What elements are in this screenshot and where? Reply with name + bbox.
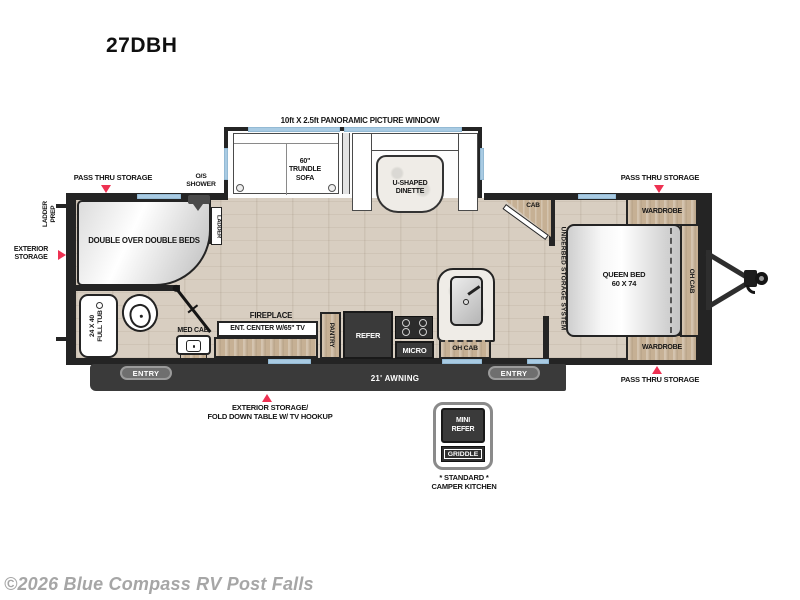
exterior-note-marker <box>262 394 272 402</box>
pass-thru-left-marker <box>101 185 111 193</box>
entry-badge-left: ENTRY <box>120 366 172 380</box>
burner-icon <box>402 328 410 336</box>
hitch-jack-hook <box>746 285 755 294</box>
queen-bed-label: QUEEN BED 60 X 74 <box>576 271 672 289</box>
wardrobe-bottom-label: WARDROBE <box>642 344 682 352</box>
corner-cab-label: CAB <box>518 202 548 210</box>
refrigerator: REFER <box>343 311 393 359</box>
entry-badge-right: ENTRY <box>488 366 540 380</box>
mini-refer: MINI REFER <box>441 408 485 443</box>
pass-thru-bottom-right-label: PASS THRU STORAGE <box>595 376 725 385</box>
hitch-ball-center <box>759 276 764 281</box>
wall-stub-ext-storage <box>56 337 66 341</box>
burner-icon <box>419 328 427 336</box>
kitchen-oh-cab-label: OH CAB <box>452 345 478 353</box>
exterior-storage-marker <box>58 250 66 260</box>
cooktop <box>395 316 433 339</box>
slideout-divider <box>342 133 350 194</box>
floorplan-canvas: 27DBH 60" TRUNDLE SOFA U-SHAPED DINETTE … <box>0 0 800 600</box>
faucet-icon <box>463 299 469 305</box>
awning-label: 21' AWNING <box>300 374 490 383</box>
ent-center-cabinet <box>214 337 318 358</box>
tub-label: 24 X 40 FULL TUB <box>89 298 107 354</box>
kitchen-oh-cab: OH CAB <box>439 340 491 359</box>
sofa-armrest-left <box>236 184 244 192</box>
os-shower-label: O/S SHOWER <box>178 173 224 189</box>
slideout-side-window-left <box>224 148 228 180</box>
sofa-label: 60" TRUNDLE SOFA <box>266 158 344 183</box>
wall-left-rear <box>66 193 76 365</box>
bunk-label: DOUBLE OVER DOUBLE BEDS <box>80 236 208 245</box>
burner-icon <box>419 319 427 327</box>
slideout-side-window-right <box>480 148 484 180</box>
bedroom-oh-cab-label: OH CAB <box>685 261 695 301</box>
pass-thru-top-right-label: PASS THRU STORAGE <box>595 174 725 183</box>
window-bedroom-top <box>578 194 616 199</box>
med-cab-label: MED CAB <box>168 327 218 335</box>
camper-kitchen-note: * STANDARD * CAMPER KITCHEN <box>400 474 528 492</box>
dealer-watermark: ©2026 Blue Compass RV Post Falls <box>4 574 314 595</box>
outside-shower-nozzle-icon <box>193 204 203 211</box>
panoramic-window-right <box>344 127 462 132</box>
hitch-crossmember <box>706 250 711 310</box>
dinette-bench-left <box>352 133 372 211</box>
griddle: GRIDDLE <box>441 446 485 462</box>
pass-thru-left-label: PASS THRU STORAGE <box>48 174 178 183</box>
hitch-ball <box>755 272 768 285</box>
exterior-note-label: EXTERIOR STORAGE/ FOLD DOWN TABLE W/ TV … <box>160 404 380 422</box>
wardrobe-bottom: WARDROBE <box>626 334 698 362</box>
fireplace-label: FIREPLACE <box>231 311 311 320</box>
pass-thru-bottom-right-marker <box>652 366 662 374</box>
pass-thru-top-right-marker <box>654 185 664 193</box>
outside-shower-icon <box>188 195 210 204</box>
wardrobe-top-label: WARDROBE <box>642 208 682 216</box>
wardrobe-top: WARDROBE <box>626 198 698 226</box>
panoramic-window-label: 10ft X 2.5ft PANORAMIC PICTURE WINDOW <box>230 116 490 125</box>
exterior-storage-label: EXTERIOR STORAGE <box>6 246 56 263</box>
dinette-label: U-SHAPED DINETTE <box>376 180 444 197</box>
med-cab-sink <box>176 335 211 355</box>
model-number: 27DBH <box>106 34 177 58</box>
wall-bedroom-lower <box>543 316 549 362</box>
lav-drain-dot <box>193 345 196 348</box>
griddle-label: GRIDDLE <box>444 449 483 459</box>
wall-top-mid <box>484 193 554 200</box>
window-bunk-top <box>137 194 181 199</box>
panoramic-window-left <box>248 127 340 132</box>
burner-icon <box>402 319 410 327</box>
med-cab-base <box>180 354 207 359</box>
bunk-ladder-label: LADDER <box>213 209 222 245</box>
microwave: MICRO <box>395 341 434 359</box>
sofa-armrest-right <box>328 184 336 192</box>
ent-center-label: ENT. CENTER W/65" TV <box>230 325 304 333</box>
dinette-bench-right <box>458 133 478 211</box>
underbed-storage-label: UNDERBED STORAGE SYSTEM <box>556 224 567 334</box>
ladder-prep-label: LADDER PREP <box>42 192 58 236</box>
pantry-label: PANTRY <box>325 315 335 355</box>
ent-center: ENT. CENTER W/65" TV <box>217 321 318 337</box>
